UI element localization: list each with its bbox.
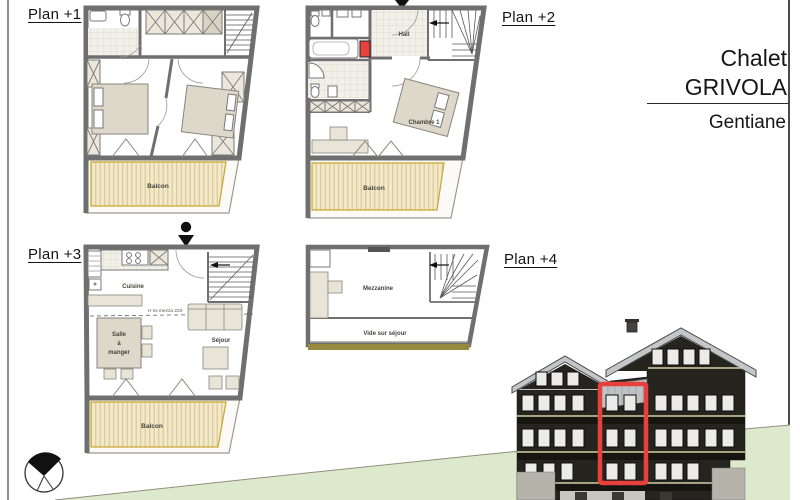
plan3-entry-door	[176, 250, 204, 278]
plan3-balcony-label: Balcon	[141, 423, 163, 430]
plan3-side-table	[226, 376, 239, 389]
plan3-dining-label-3: manger	[108, 350, 130, 356]
plan2-cabinet	[330, 127, 347, 140]
building-elevation	[512, 319, 756, 500]
plan3-floorplan: Balcon Cuisine	[86, 247, 257, 453]
plan4-stairs	[429, 252, 478, 302]
plan2-closets	[310, 101, 370, 112]
plan3-side-table	[209, 376, 222, 389]
plan2-sideboard	[312, 140, 368, 153]
plan2-stairs	[428, 8, 480, 60]
plan3-dining-label-1: Salle	[112, 332, 127, 338]
plan1-bathroom-floor	[88, 28, 138, 55]
plan1-stairs	[225, 10, 253, 56]
plan4-vent	[368, 247, 390, 252]
plan1-bed-right	[181, 85, 238, 138]
plan1-balcony-label: Balcon	[147, 183, 169, 190]
plan1-bed-left	[92, 84, 148, 134]
plan3-living-label: Séjour	[212, 338, 231, 344]
plan2-floorplan: Balcon	[308, 8, 484, 218]
plan2-wc-fixtures	[311, 10, 361, 27]
plan2-shaft-red	[360, 41, 370, 57]
plan4-balcony-rail-top	[308, 344, 470, 350]
plan4-mezzanine-label: Mezzanine	[363, 286, 394, 292]
chimney-cap	[625, 319, 639, 322]
plan3-kitchen-label: Cuisine	[122, 284, 144, 290]
plan2-hall-label: Hall	[398, 32, 409, 38]
plan1-bedroom-divider	[151, 59, 172, 157]
plan3-kitchen: Cuisine	[88, 250, 168, 306]
plan3-stairs	[208, 252, 254, 302]
plan3-sofa	[188, 304, 242, 330]
plan3-dining-table: Salle à manger	[97, 318, 152, 379]
plan2-bedroom-label: Chambre 1	[408, 120, 440, 126]
drawing-sheet: Chalet GRIVOLA Gentiane Plan +1 Plan +2 …	[0, 0, 800, 500]
entrance-marker-icon	[178, 222, 194, 247]
plan4-floorplan: Mezzanine Vide sur séjour	[308, 247, 487, 350]
plan1-balcony-doors	[112, 139, 208, 157]
plans-drawing: Balcon	[0, 0, 800, 500]
plan3-armchair	[203, 347, 228, 369]
plan4-void-label: Vide sur séjour	[363, 331, 407, 337]
plan4-closets	[310, 250, 342, 318]
plan1-floorplan: Balcon	[86, 8, 257, 213]
plan3-height-note: H ss mezza 220	[148, 308, 183, 314]
plan2-balcony-label: Balcon	[363, 185, 385, 192]
chimney	[627, 322, 637, 332]
plan2-bed	[393, 79, 459, 137]
plan3-balcony-doors	[112, 379, 196, 397]
north-compass-icon	[25, 452, 63, 492]
